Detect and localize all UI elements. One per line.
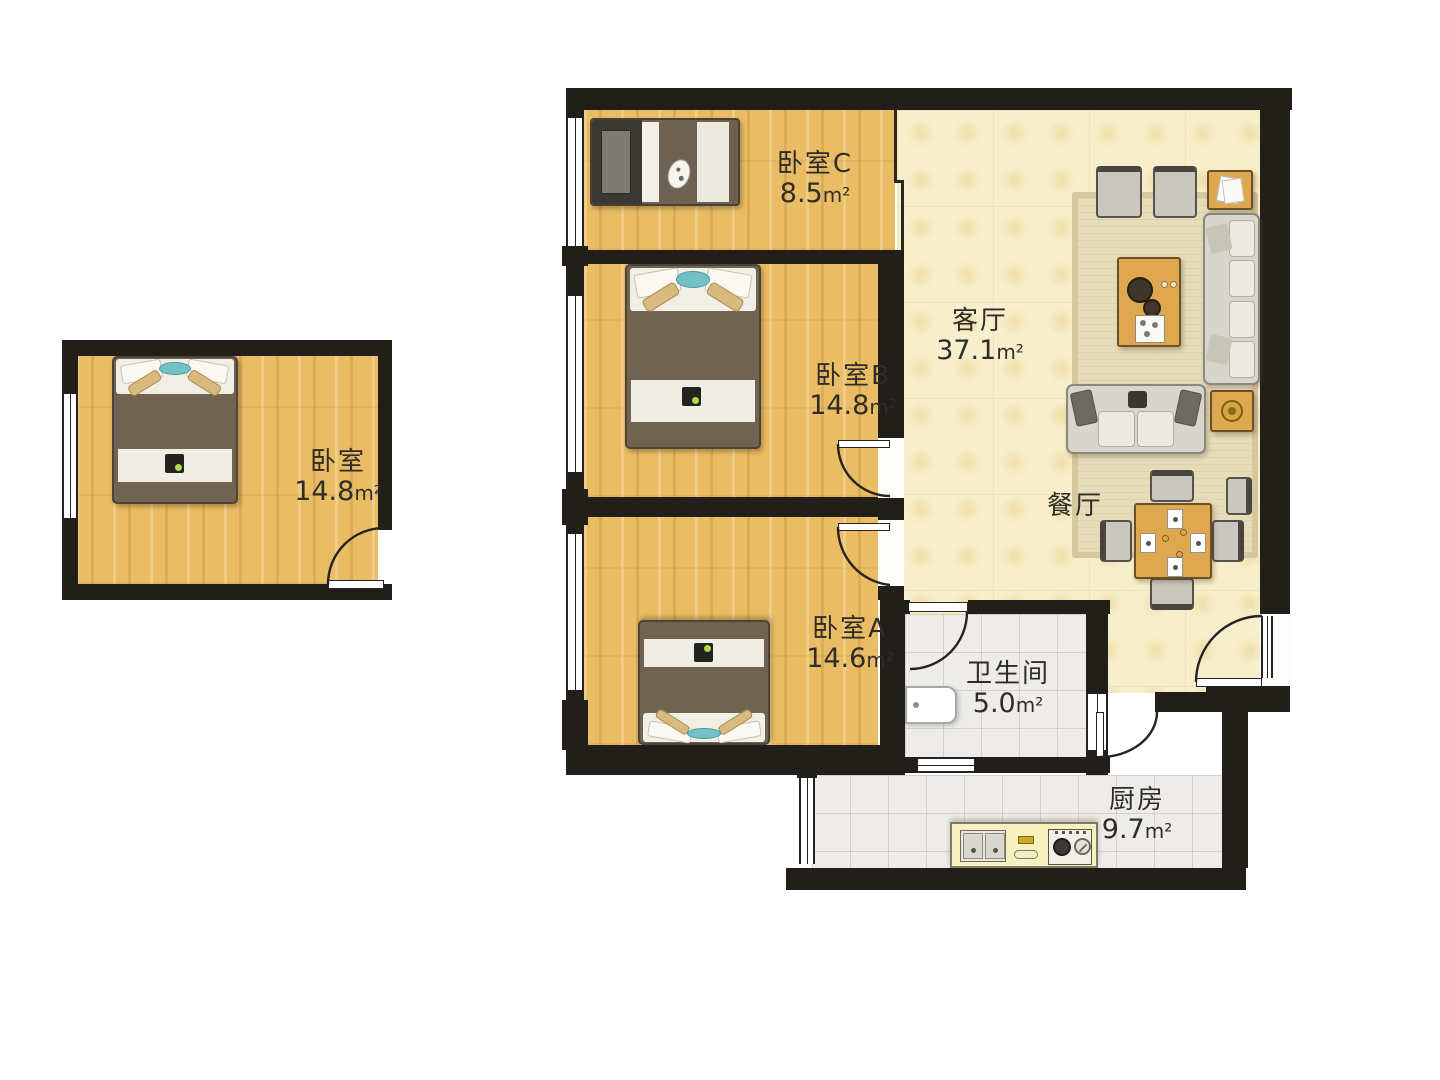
- room-label-bedroom-detached: 卧室 14.8m²: [278, 448, 398, 507]
- doorway-entry-jamb: [1261, 616, 1273, 678]
- window-bedroom-a: [566, 534, 584, 690]
- double-bed-bedroom-b: [625, 264, 761, 449]
- room-area: 5.0m²: [955, 689, 1061, 719]
- bed-tray: [682, 387, 701, 406]
- bed-sheet: [642, 122, 660, 203]
- sink-basin: [963, 833, 983, 859]
- dining-chair: [1150, 470, 1194, 502]
- wall-dining-kitchen-2: [1155, 692, 1210, 712]
- cup: [1176, 551, 1183, 558]
- sofa-cushion: [1137, 411, 1174, 447]
- wall-left-chunk3: [562, 700, 588, 750]
- window-bathroom-bottom: [918, 757, 974, 773]
- armchair: [1096, 166, 1142, 218]
- wall-bedroom-divider: [584, 497, 904, 517]
- sofa-cushion: [1229, 301, 1256, 338]
- room-label-bedroom-a: 卧室A 14.6m²: [790, 615, 910, 674]
- door-leaf-bedroom-a: [838, 523, 890, 531]
- dining-chair: [1100, 520, 1132, 562]
- double-sink: [960, 830, 1006, 862]
- tray-cup: [1152, 322, 1158, 328]
- wall-bedroom-a-bottom: [566, 745, 905, 775]
- room-area: 14.6m²: [790, 644, 910, 674]
- burner: [1053, 838, 1071, 856]
- room-label-bedroom-b: 卧室B 14.8m²: [793, 362, 913, 421]
- stool: [1226, 477, 1252, 515]
- pillow: [1173, 389, 1201, 427]
- cup: [1161, 281, 1168, 288]
- plate: [1167, 509, 1183, 529]
- room-label-kitchen: 厨房 9.7m²: [1082, 786, 1192, 845]
- room-name: 餐厅: [1038, 492, 1112, 521]
- room-name: 卧室B: [793, 362, 913, 391]
- sofa-cushion: [1098, 411, 1135, 447]
- sofa: [1203, 213, 1260, 385]
- door-leaf-kitchen: [1096, 712, 1104, 757]
- washbasin: [905, 686, 957, 724]
- sofa-cushion: [1229, 341, 1256, 378]
- coffee-table: [1117, 257, 1181, 347]
- drain: [971, 848, 976, 853]
- loveseat-sofa: [1066, 384, 1206, 454]
- wall-entry-jog: [1206, 686, 1290, 712]
- remote-tray: [1128, 391, 1147, 408]
- room-name: 卧室A: [790, 615, 910, 644]
- cat-on-bed: [664, 156, 694, 191]
- door-arc-kitchen: [1100, 712, 1157, 757]
- wall-bath-bottom: [880, 757, 1110, 773]
- room-name: 客厅: [917, 307, 1043, 336]
- bed-headboard: [592, 120, 642, 204]
- room-name: 厨房: [1082, 786, 1192, 815]
- window-bedroom-b: [566, 296, 584, 472]
- floor-plan: 卧室C 8.5m² 客厅 37.1m² 卧室B 14.8m² 卧室A 14.6m…: [0, 0, 1440, 1080]
- drain: [993, 848, 998, 853]
- sofa-cushion: [1229, 220, 1256, 257]
- bed-tray: [694, 643, 713, 662]
- papers: [1221, 178, 1244, 205]
- window-bedroom-detached: [62, 394, 78, 518]
- cutting-board: [1014, 850, 1038, 859]
- cup: [1162, 535, 1169, 542]
- room-label-bedroom-c: 卧室C 8.5m²: [755, 150, 875, 209]
- door-leaf-bedroom-b: [838, 440, 890, 448]
- plate: [1140, 533, 1156, 553]
- sink-basin: [985, 833, 1005, 859]
- room-area: 37.1m²: [917, 336, 1043, 366]
- door-leaf-bathroom: [908, 602, 968, 612]
- tray: [1135, 315, 1165, 343]
- room-area: 14.8m²: [793, 391, 913, 421]
- cat-spot: [676, 167, 681, 172]
- gold-bowl: [1221, 400, 1243, 422]
- single-bed-bedroom-c: [590, 118, 740, 206]
- window-kitchen: [799, 778, 815, 864]
- room-name: 卧室: [278, 448, 398, 477]
- tray-cup: [1144, 331, 1150, 337]
- control-panel: [1018, 836, 1034, 844]
- plate: [1190, 533, 1206, 553]
- bed-tray: [165, 454, 184, 473]
- wall-kitchen-bottom: [786, 868, 1246, 890]
- room-label-dining: 餐厅: [1038, 492, 1112, 521]
- wall-detached-top: [62, 340, 392, 356]
- dining-chair: [1212, 520, 1244, 562]
- dining-table: [1134, 503, 1212, 579]
- partition-bedroom-c: [894, 110, 897, 182]
- wall-top: [566, 88, 1292, 110]
- room-area: 8.5m²: [755, 179, 875, 209]
- cup: [1170, 281, 1177, 288]
- pillow-accent: [676, 271, 710, 287]
- room-area: 9.7m²: [1082, 815, 1192, 845]
- room-name: 卧室C: [755, 150, 875, 179]
- faucet: [913, 702, 919, 708]
- double-bed-detached: [112, 356, 238, 504]
- room-label-bathroom: 卫生间 5.0m²: [955, 660, 1061, 719]
- cat-spot: [678, 175, 684, 181]
- bed-sheet: [697, 122, 729, 203]
- room-area: 14.8m²: [278, 477, 398, 507]
- bed-headboard-panel: [601, 130, 631, 194]
- side-table: [1210, 390, 1254, 432]
- door-leaf-entry: [1196, 678, 1262, 687]
- cup: [1180, 529, 1187, 536]
- dining-chair: [1150, 578, 1194, 610]
- double-bed-bedroom-a: [638, 620, 770, 745]
- wall-bedroom-c-bottom: [566, 250, 904, 264]
- door-leaf-bedroom-detached: [328, 580, 384, 589]
- kitchen-counter: [950, 822, 1098, 868]
- side-table: [1207, 170, 1253, 210]
- gold-bowl-center: [1228, 407, 1236, 415]
- room-name: 卫生间: [955, 660, 1061, 689]
- pillow: [1070, 389, 1098, 427]
- wall-right: [1260, 110, 1290, 616]
- tray-cup: [1140, 320, 1146, 326]
- wall-kitchen-right: [1222, 712, 1248, 868]
- partition-bedroom-c-lower: [901, 181, 904, 251]
- sofa-cushion: [1229, 260, 1256, 297]
- armchair: [1153, 166, 1197, 218]
- window-bedroom-c: [566, 118, 584, 246]
- plate: [1167, 557, 1183, 577]
- room-label-living: 客厅 37.1m²: [917, 307, 1043, 366]
